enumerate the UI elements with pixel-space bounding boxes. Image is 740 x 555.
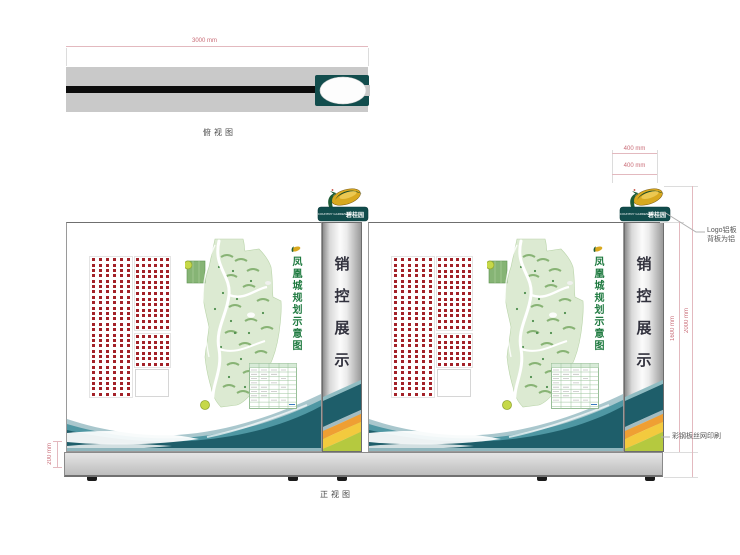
unit-dot — [429, 328, 432, 331]
unit-dot — [166, 298, 169, 301]
unit-dot — [148, 270, 151, 273]
unit-dot — [415, 290, 418, 293]
unit-dot — [462, 270, 465, 273]
unit-dot — [450, 258, 453, 261]
unit-dot — [468, 320, 471, 323]
logo-note-line1: Logo铝板 — [707, 226, 740, 235]
unit-dot — [401, 339, 404, 342]
unit-dot — [394, 258, 397, 261]
leveling-foot — [87, 477, 97, 481]
unit-dot — [142, 314, 145, 317]
unit-dot — [154, 258, 157, 261]
unit-dot — [415, 317, 418, 320]
unit-dot — [148, 281, 151, 284]
unit-dot — [136, 309, 139, 312]
total-height-dimension: 2000 mm — [684, 308, 691, 333]
logo-text-en: COUNTRY GARDEN — [318, 212, 346, 216]
unit-dot — [99, 301, 102, 304]
unit-dot — [99, 344, 102, 347]
unit-dot — [408, 344, 411, 347]
sales-dot-grid-top — [134, 256, 171, 331]
unit-dot — [444, 320, 447, 323]
unit-dot — [154, 270, 157, 273]
unit-dot — [120, 307, 123, 310]
unit-dot — [394, 344, 397, 347]
unit-dot — [120, 258, 123, 261]
unit-dot — [429, 280, 432, 283]
unit-dot — [136, 258, 139, 261]
unit-dot — [106, 312, 109, 315]
unit-dot — [154, 303, 157, 306]
unit-dot — [456, 264, 459, 267]
unit-dot — [160, 326, 163, 329]
dimension-line — [57, 441, 58, 467]
unit-dot — [394, 323, 397, 326]
mini-phoenix-icon — [289, 245, 301, 254]
unit-dot — [456, 298, 459, 301]
unit-dot — [408, 312, 411, 315]
unit-dot — [422, 323, 425, 326]
unit-dot — [92, 285, 95, 288]
unit-dot — [462, 309, 465, 312]
unit-dot — [99, 312, 102, 315]
unit-dot — [136, 286, 139, 289]
unit-dot — [394, 290, 397, 293]
unit-dot — [408, 280, 411, 283]
unit-dot — [438, 298, 441, 301]
unit-dot — [113, 339, 116, 342]
unit-dot — [160, 335, 163, 338]
unit-dot — [127, 274, 130, 277]
unit-dot — [394, 274, 397, 277]
unit-dot — [92, 344, 95, 347]
unit-dot — [429, 285, 432, 288]
unit-dot — [456, 320, 459, 323]
unit-dot — [408, 339, 411, 342]
unit-dot — [166, 264, 169, 267]
unit-dot — [148, 292, 151, 295]
unit-dot — [120, 290, 123, 293]
unit-dot — [127, 264, 130, 267]
unit-dot — [92, 269, 95, 272]
unit-dot — [468, 258, 471, 261]
unit-dot — [166, 270, 169, 273]
unit-dot — [154, 346, 157, 349]
unit-dot — [136, 298, 139, 301]
mini-phoenix-icon — [591, 245, 603, 254]
unit-dot — [450, 314, 453, 317]
unit-dot — [160, 292, 163, 295]
unit-dot — [456, 303, 459, 306]
unit-dot — [106, 296, 109, 299]
unit-dot — [166, 326, 169, 329]
unit-dot — [444, 303, 447, 306]
unit-dot — [127, 307, 130, 310]
unit-dot — [438, 258, 441, 261]
unit-dot — [444, 270, 447, 273]
unit-dot — [127, 269, 130, 272]
extension-line — [53, 467, 62, 468]
unit-dot — [450, 281, 453, 284]
pillar-stripe-graphic — [323, 371, 362, 451]
unit-dot — [160, 320, 163, 323]
unit-dot — [99, 328, 102, 331]
unit-dot — [408, 328, 411, 331]
design-drawing: 3000 mm 俯视图 COUNTRY GARDEN 碧桂园 — [0, 0, 740, 555]
unit-dot — [394, 301, 397, 304]
unit-dot — [113, 323, 116, 326]
unit-dot — [415, 328, 418, 331]
unit-dot — [127, 328, 130, 331]
unit-dot — [142, 341, 145, 344]
unit-dot — [113, 334, 116, 337]
unit-dot — [429, 258, 432, 261]
unit-dot — [468, 292, 471, 295]
unit-dot — [438, 303, 441, 306]
unit-dot — [450, 335, 453, 338]
top-view-caption: 俯视图 — [203, 127, 236, 138]
pillar-char: 控 — [636, 285, 651, 306]
unit-dot — [99, 317, 102, 320]
unit-dot — [450, 275, 453, 278]
top-width-dimension: 3000 mm — [192, 38, 217, 45]
unit-dot — [160, 258, 163, 261]
logo-depth-dimension: 400 mm — [612, 163, 657, 170]
unit-dot — [106, 317, 109, 320]
unit-dot — [450, 298, 453, 301]
unit-dot — [401, 285, 404, 288]
board-face: 凤凰城规划示意图 — [368, 222, 624, 452]
unit-dot — [106, 258, 109, 261]
unit-dot — [456, 309, 459, 312]
unit-dot — [438, 286, 441, 289]
unit-dot — [113, 317, 116, 320]
unit-dot — [468, 341, 471, 344]
unit-dot — [438, 341, 441, 344]
pillar-char: 展 — [636, 317, 651, 338]
leveling-foot — [288, 477, 298, 481]
unit-dot — [401, 258, 404, 261]
unit-dot — [408, 290, 411, 293]
unit-dot — [438, 326, 441, 329]
unit-dot — [401, 290, 404, 293]
unit-schedule-table — [249, 363, 297, 409]
unit-dot — [142, 264, 145, 267]
unit-dot — [113, 274, 116, 277]
unit-dot — [113, 280, 116, 283]
unit-dot — [450, 320, 453, 323]
unit-dot — [438, 314, 441, 317]
unit-dot — [160, 298, 163, 301]
unit-dot — [99, 307, 102, 310]
unit-dot — [415, 344, 418, 347]
unit-dot — [422, 274, 425, 277]
unit-dot — [408, 296, 411, 299]
pillar-char: 示 — [636, 349, 651, 370]
unit-dot — [136, 264, 139, 267]
pillar-char: 示 — [334, 349, 349, 370]
leveling-foot — [645, 477, 655, 481]
unit-dot — [468, 281, 471, 284]
unit-dot — [468, 346, 471, 349]
country-garden-logo-icon: COUNTRY GARDEN 碧桂园 — [619, 185, 671, 223]
unit-dot — [444, 275, 447, 278]
unit-dot — [415, 301, 418, 304]
unit-dot — [92, 317, 95, 320]
unit-dot — [462, 346, 465, 349]
map-title-block: 凤凰城规划示意图 — [589, 245, 605, 352]
unit-dot — [422, 280, 425, 283]
unit-dot — [462, 281, 465, 284]
unit-dot — [127, 317, 130, 320]
unit-dot — [154, 335, 157, 338]
unit-dot — [142, 298, 145, 301]
unit-dot — [468, 335, 471, 338]
unit-dot — [106, 323, 109, 326]
unit-dot — [127, 344, 130, 347]
unit-dot — [136, 320, 139, 323]
unit-dot — [415, 269, 418, 272]
extension-line — [53, 441, 62, 442]
unit-dot — [415, 323, 418, 326]
unit-dot — [99, 339, 102, 342]
unit-dot — [415, 312, 418, 315]
unit-dot — [106, 334, 109, 337]
unit-dot — [429, 312, 432, 315]
unit-dot — [450, 292, 453, 295]
pillar-title: 销 控 展 示 — [625, 253, 663, 370]
unit-dot — [422, 290, 425, 293]
unit-dot — [113, 269, 116, 272]
unit-dot — [468, 309, 471, 312]
unit-dot — [462, 335, 465, 338]
unit-dot — [160, 309, 163, 312]
pillar: 销 控 展 示 — [624, 222, 664, 452]
unit-dot — [120, 339, 123, 342]
unit-dot — [422, 258, 425, 261]
unit-dot — [92, 264, 95, 267]
unit-dot — [408, 274, 411, 277]
unit-dot — [450, 264, 453, 267]
unit-dot — [154, 309, 157, 312]
extension-line — [368, 48, 369, 66]
unit-dot — [166, 309, 169, 312]
unit-dot — [462, 292, 465, 295]
unit-dot — [401, 307, 404, 310]
unit-dot — [148, 335, 151, 338]
unit-dot — [166, 320, 169, 323]
unit-dot — [408, 317, 411, 320]
top-view-rail — [66, 86, 334, 93]
unit-dot — [429, 290, 432, 293]
unit-dot — [166, 335, 169, 338]
unit-dot — [120, 264, 123, 267]
unit-dot — [401, 269, 404, 272]
unit-dot — [166, 346, 169, 349]
unit-dot — [92, 307, 95, 310]
unit-dot — [113, 285, 116, 288]
unit-dot — [99, 269, 102, 272]
unit-dot — [127, 301, 130, 304]
unit-dot — [408, 307, 411, 310]
unit-dot — [148, 258, 151, 261]
unit-dot — [92, 296, 95, 299]
unit-dot — [438, 275, 441, 278]
unit-dot — [456, 346, 459, 349]
display-board-unit: COUNTRY GARDEN 碧桂园 — [66, 185, 362, 477]
dimension-line — [612, 153, 657, 154]
unit-dot — [148, 309, 151, 312]
front-view-caption: 正视图 — [320, 489, 353, 500]
unit-dot — [444, 258, 447, 261]
unit-dot — [468, 264, 471, 267]
pillar-title: 销 控 展 示 — [323, 253, 361, 370]
unit-dot — [408, 301, 411, 304]
unit-dot — [444, 286, 447, 289]
unit-dot — [127, 296, 130, 299]
unit-dot — [166, 341, 169, 344]
unit-dot — [408, 258, 411, 261]
unit-dot — [401, 334, 404, 337]
unit-dot — [462, 303, 465, 306]
unit-dot — [401, 317, 404, 320]
unit-dot — [127, 339, 130, 342]
unit-dot — [438, 264, 441, 267]
unit-dot — [394, 269, 397, 272]
unit-dot — [113, 301, 116, 304]
unit-dot — [154, 320, 157, 323]
unit-dot — [401, 323, 404, 326]
country-garden-logo-icon: COUNTRY GARDEN 碧桂园 — [317, 185, 369, 223]
unit-dot — [450, 346, 453, 349]
unit-dot — [462, 264, 465, 267]
unit-dot — [468, 286, 471, 289]
unit-dot — [415, 296, 418, 299]
map-title-block: 凤凰城规划示意图 — [287, 245, 303, 352]
unit-dot — [429, 301, 432, 304]
unit-dot — [450, 309, 453, 312]
unit-dot — [422, 264, 425, 267]
unit-dot — [148, 303, 151, 306]
unit-dot — [401, 301, 404, 304]
unit-dot — [106, 280, 109, 283]
unit-dot — [429, 344, 432, 347]
unit-dot — [99, 323, 102, 326]
board-face: 凤凰城规划示意图 — [66, 222, 322, 452]
unit-dot — [99, 296, 102, 299]
unit-dot — [154, 286, 157, 289]
unit-dot — [408, 269, 411, 272]
unit-dot — [160, 286, 163, 289]
unit-dot — [429, 296, 432, 299]
sales-dot-grid-top — [436, 256, 473, 331]
leveling-foot — [337, 477, 347, 481]
pillar: 销 控 展 示 — [322, 222, 362, 452]
extension-line — [664, 477, 698, 478]
map-title-text: 凤凰城规划示意图 — [590, 256, 604, 352]
unit-dot — [160, 281, 163, 284]
unit-dot — [120, 312, 123, 315]
leveling-foot — [537, 477, 547, 481]
pillar-char: 控 — [334, 285, 349, 306]
logo-text-en: COUNTRY GARDEN — [620, 212, 648, 216]
dimension-line — [679, 222, 680, 452]
unit-dot — [127, 285, 130, 288]
unit-dot — [106, 269, 109, 272]
pillar-char: 销 — [636, 253, 651, 274]
unit-dot — [415, 280, 418, 283]
unit-dot — [462, 320, 465, 323]
unit-dot — [166, 286, 169, 289]
unit-dot — [106, 339, 109, 342]
unit-dot — [154, 292, 157, 295]
unit-dot — [92, 334, 95, 337]
unit-dot — [408, 285, 411, 288]
unit-dot — [422, 339, 425, 342]
extension-line — [657, 150, 658, 183]
unit-dot — [160, 314, 163, 317]
unit-dot — [438, 335, 441, 338]
unit-dot — [136, 275, 139, 278]
unit-dot — [92, 290, 95, 293]
unit-dot — [142, 303, 145, 306]
unit-dot — [422, 285, 425, 288]
unit-dot — [394, 296, 397, 299]
unit-dot — [415, 258, 418, 261]
unit-dot — [136, 270, 139, 273]
unit-dot — [142, 335, 145, 338]
unit-dot — [92, 328, 95, 331]
unit-dot — [456, 286, 459, 289]
unit-dot — [408, 334, 411, 337]
unit-dot — [113, 258, 116, 261]
logo-note-line2: 背板为铝 — [707, 235, 740, 244]
unit-dot — [154, 281, 157, 284]
unit-dot — [142, 281, 145, 284]
unit-dot — [106, 274, 109, 277]
unit-dot — [154, 275, 157, 278]
unit-dot — [444, 292, 447, 295]
unit-dot — [154, 298, 157, 301]
unit-dot — [462, 341, 465, 344]
unit-dot — [429, 274, 432, 277]
unit-dot — [142, 309, 145, 312]
unit-dot — [120, 334, 123, 337]
unit-dot — [456, 335, 459, 338]
unit-dot — [127, 280, 130, 283]
unit-dot — [148, 275, 151, 278]
unit-dot — [394, 317, 397, 320]
unit-dot — [113, 328, 116, 331]
unit-dot — [415, 285, 418, 288]
unit-dot — [462, 275, 465, 278]
unit-dot — [422, 344, 425, 347]
unit-dot — [422, 317, 425, 320]
unit-dot — [148, 264, 151, 267]
unit-dot — [438, 346, 441, 349]
unit-dot — [429, 334, 432, 337]
unit-dot — [148, 341, 151, 344]
unit-dot — [444, 335, 447, 338]
unit-dot — [429, 269, 432, 272]
unit-dot — [142, 320, 145, 323]
unit-dot — [160, 346, 163, 349]
unit-dot — [142, 286, 145, 289]
unit-dot — [450, 286, 453, 289]
unit-dot — [444, 309, 447, 312]
unit-dot — [429, 339, 432, 342]
unit-dot — [120, 301, 123, 304]
